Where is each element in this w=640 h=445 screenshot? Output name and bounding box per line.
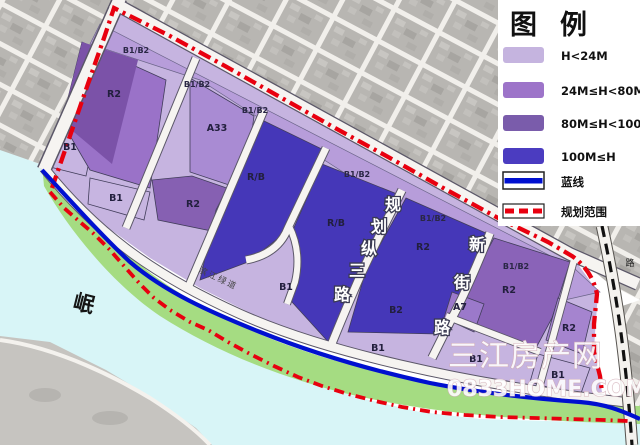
parcel-label: A33 (207, 123, 228, 134)
legend-symbol-blue-line (505, 178, 543, 184)
road-name-char: 路 (625, 257, 634, 269)
parcel-label: R2 (186, 199, 200, 210)
road-name-char: 路 (434, 318, 451, 337)
parcel-label: R/B (247, 172, 265, 183)
watermark-site-name: 三江房产网 (448, 339, 603, 374)
watermark-site-url: 0833HOME.COM (447, 377, 640, 402)
legend-item-label: 100M≤H (561, 150, 616, 164)
strip-label: B1/B2 (503, 262, 529, 271)
planning-map-screenshot: B1 R2 B1 A33 R2 R/B R/B B1 R2 B2 B1 R2 A… (0, 0, 640, 445)
parcel-label: R2 (416, 242, 430, 253)
parcel-label: R2 (502, 285, 516, 296)
strip-label: B1/B2 (123, 46, 149, 55)
legend-panel: 图 例 H<24M 24M≤H<80M 80M≤H<100M 100M≤H 蓝线… (498, 0, 640, 226)
legend-item-label: H<24M (561, 49, 608, 63)
road-name-char: 新 (469, 235, 485, 254)
parcel-label: R/B (327, 218, 345, 229)
road-name-char: 三 (349, 261, 365, 280)
strip-label: B1/B2 (184, 80, 210, 89)
legend-swatch-h24-80 (503, 82, 544, 98)
road-name-char: 纵 (361, 239, 377, 258)
road-name-char: 街 (453, 273, 470, 292)
parcel-label: R2 (107, 89, 121, 100)
parcel-label: B1 (279, 282, 293, 293)
strip-label: B1/B2 (242, 106, 268, 115)
road-name-char: 路 (334, 285, 351, 304)
land-texture (92, 411, 128, 425)
legend-item-label: 蓝线 (561, 175, 584, 189)
legend-swatch-h80-100 (503, 115, 544, 131)
road-name-char: 规 (385, 195, 401, 214)
legend-swatch-h24 (503, 47, 544, 63)
parcel-label: B2 (389, 305, 403, 316)
legend-item-label: 24M≤H<80M (561, 84, 640, 98)
legend-swatch-h100 (503, 148, 544, 164)
legend-title-char: 例 (560, 10, 587, 41)
strip-label: B1/B2 (344, 170, 370, 179)
legend-item-label: 规划范围 (561, 205, 607, 219)
strip-label: B1/B2 (420, 214, 446, 223)
legend-title-char: 图 (510, 10, 537, 41)
parcel-label: A7 (453, 302, 467, 313)
legend-item-label: 80M≤H<100M (561, 117, 640, 131)
map-canvas: B1 R2 B1 A33 R2 R/B R/B B1 R2 B2 B1 R2 A… (0, 0, 640, 445)
watermark: 三江房产网 0833HOME.COM (447, 339, 640, 402)
parcel-label: R2 (562, 323, 576, 334)
land-texture (29, 388, 61, 402)
parcel-label: B1 (371, 343, 385, 354)
parcel-label: B1 (63, 142, 77, 153)
road-name-char: 划 (371, 217, 387, 236)
parcel-label: B1 (109, 193, 123, 204)
